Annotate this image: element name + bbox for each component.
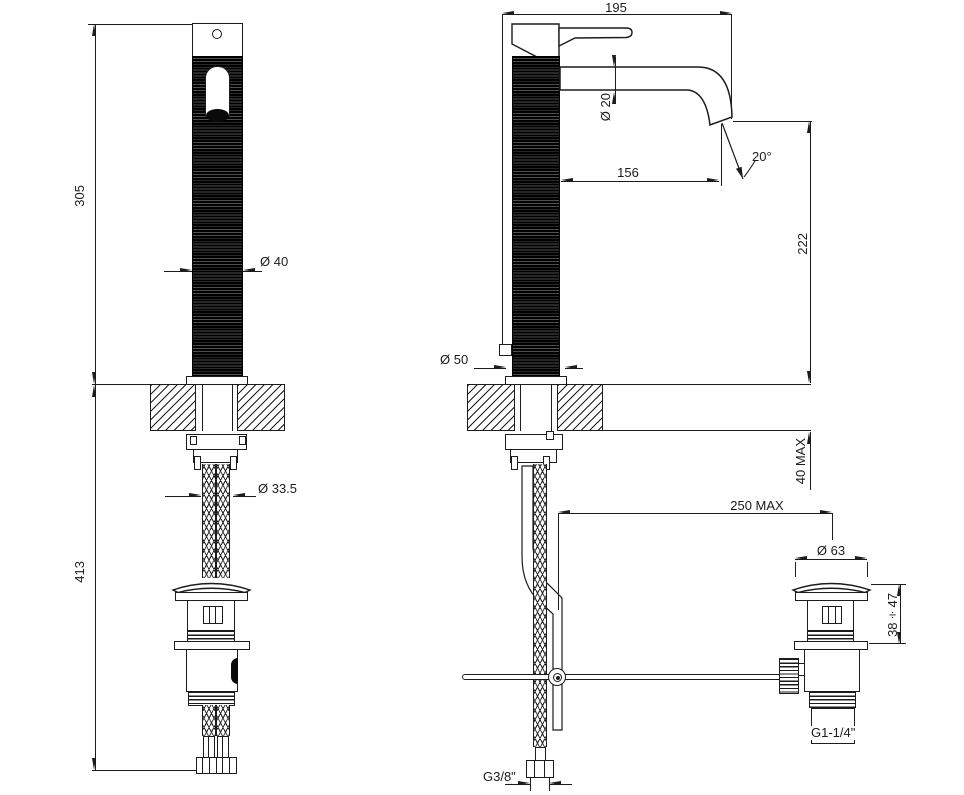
counter-top-line [603,384,811,385]
dim-label-counter-thickness: 40 MAX [793,438,808,484]
supply-hose [202,464,216,578]
dim-arrow-icon [558,510,570,514]
window-line [835,606,836,624]
hose-hex-nut [216,757,237,774]
extension-line [867,562,868,577]
waste-tail-thread [809,691,856,708]
extension-line [832,513,833,540]
dim-arrow-icon [807,121,811,133]
dim-label-mounting-hole: Ø 33.5 [258,482,297,496]
extension-line [88,24,193,25]
dim-arrow-icon [243,268,255,272]
dim-label-height-above-deck: 305 [72,185,87,207]
clamp-connector [798,663,805,676]
supply-hose [216,705,230,736]
dimension-line [810,121,811,383]
dim-label-body-diameter: Ø 40 [260,255,288,269]
dim-label-supply-thread: G3/8" [483,770,516,784]
extension-line [795,562,796,577]
nut-facet-line [544,760,545,778]
dim-label-waste-height-range: 38÷47 [885,593,900,637]
window-line [215,606,216,624]
bracket-tab [239,436,246,445]
extension-line [558,513,559,610]
hose-hex-nut [526,760,554,778]
counter-section [150,384,196,431]
ferrule-line [222,736,223,758]
pivot-center [556,676,560,680]
mounting-prong [194,456,201,470]
dim-arrow-icon [549,781,561,785]
dim-label-base-diameter: Ø 50 [440,353,468,367]
dim-label-waste-thread: G1-1/4" [810,726,856,740]
nut-facet-line [209,757,210,774]
dim-arrow-icon [189,493,201,497]
extension-line [733,121,812,122]
dim-arrow-icon [92,24,96,36]
hose-hex-nut [196,757,217,774]
dimension-line [95,24,96,771]
extension-line [92,770,196,771]
body-tab [499,344,512,356]
ferrule-line [208,736,209,758]
dim-arrow-icon [233,493,245,497]
dim-label-overall-depth: 195 [599,1,633,15]
counter-section [557,384,603,431]
dim-label-spout-height: 222 [795,233,810,255]
dimension-line [558,513,832,514]
dim-arrow-icon [565,365,577,369]
overflow-window [822,606,842,624]
dim-label-spout-diameter: Ø 20 [598,93,613,121]
dim-label-waste-cap-diameter: Ø 63 [801,544,861,558]
mounting-prong [511,456,518,470]
waste-lower-body [804,649,860,692]
faucet-body-side [512,56,560,378]
shank-line [232,384,233,431]
counter-section [237,384,285,431]
supply-hose [202,705,216,736]
shank-line [520,384,521,431]
extension-line [530,778,531,791]
dim-arrow-icon [612,55,616,67]
extension-line [92,384,150,385]
rod-clamp [779,658,799,694]
dim-arrow-icon [561,178,573,182]
supply-hose [216,464,230,578]
spout [558,60,738,130]
technical-drawing: 305 413 Ø 40 [0,0,964,795]
dim-arrow-icon [820,510,832,514]
dim-arrow-icon [92,385,96,397]
dim-label-waste-offset: 250 MAX [718,499,796,513]
dim-arrow-icon [502,11,514,15]
window-line [209,606,210,624]
nut-facet-line [534,760,535,778]
counter-section [467,384,515,431]
dim-label-spout-reach: 156 [612,166,644,180]
dim-arrow-icon [92,372,96,384]
extension-line [502,14,503,347]
counter-bottom-line [603,430,811,431]
rod-hole [231,658,238,684]
dim-label-height-below-deck: 413 [72,561,87,583]
dim-arrow-icon [807,371,811,383]
window-line [828,606,829,624]
bracket-tab [546,431,554,440]
supply-hose [533,464,547,747]
nut-facet-line [202,757,203,774]
bracket-tab [190,436,197,445]
dim-arrow-icon [518,781,530,785]
shank-line [202,384,203,431]
shank-line [551,384,552,431]
handle-end-circle [212,29,222,39]
dim-arrow-icon [180,268,192,272]
linkage-bar [462,674,780,680]
waste-tail-thread [188,691,235,706]
dim-arrow-icon [92,758,96,770]
dimension-line [561,181,719,182]
dim-arrow-icon [494,365,506,369]
nut-facet-line [222,757,223,774]
lever-handle [559,28,632,46]
dim-label-water-angle: 20° [752,150,772,164]
nut-facet-line [229,757,230,774]
mounting-bracket [505,434,563,450]
mounting-prong [230,456,237,470]
aerator [206,109,229,122]
overflow-window [203,606,223,624]
